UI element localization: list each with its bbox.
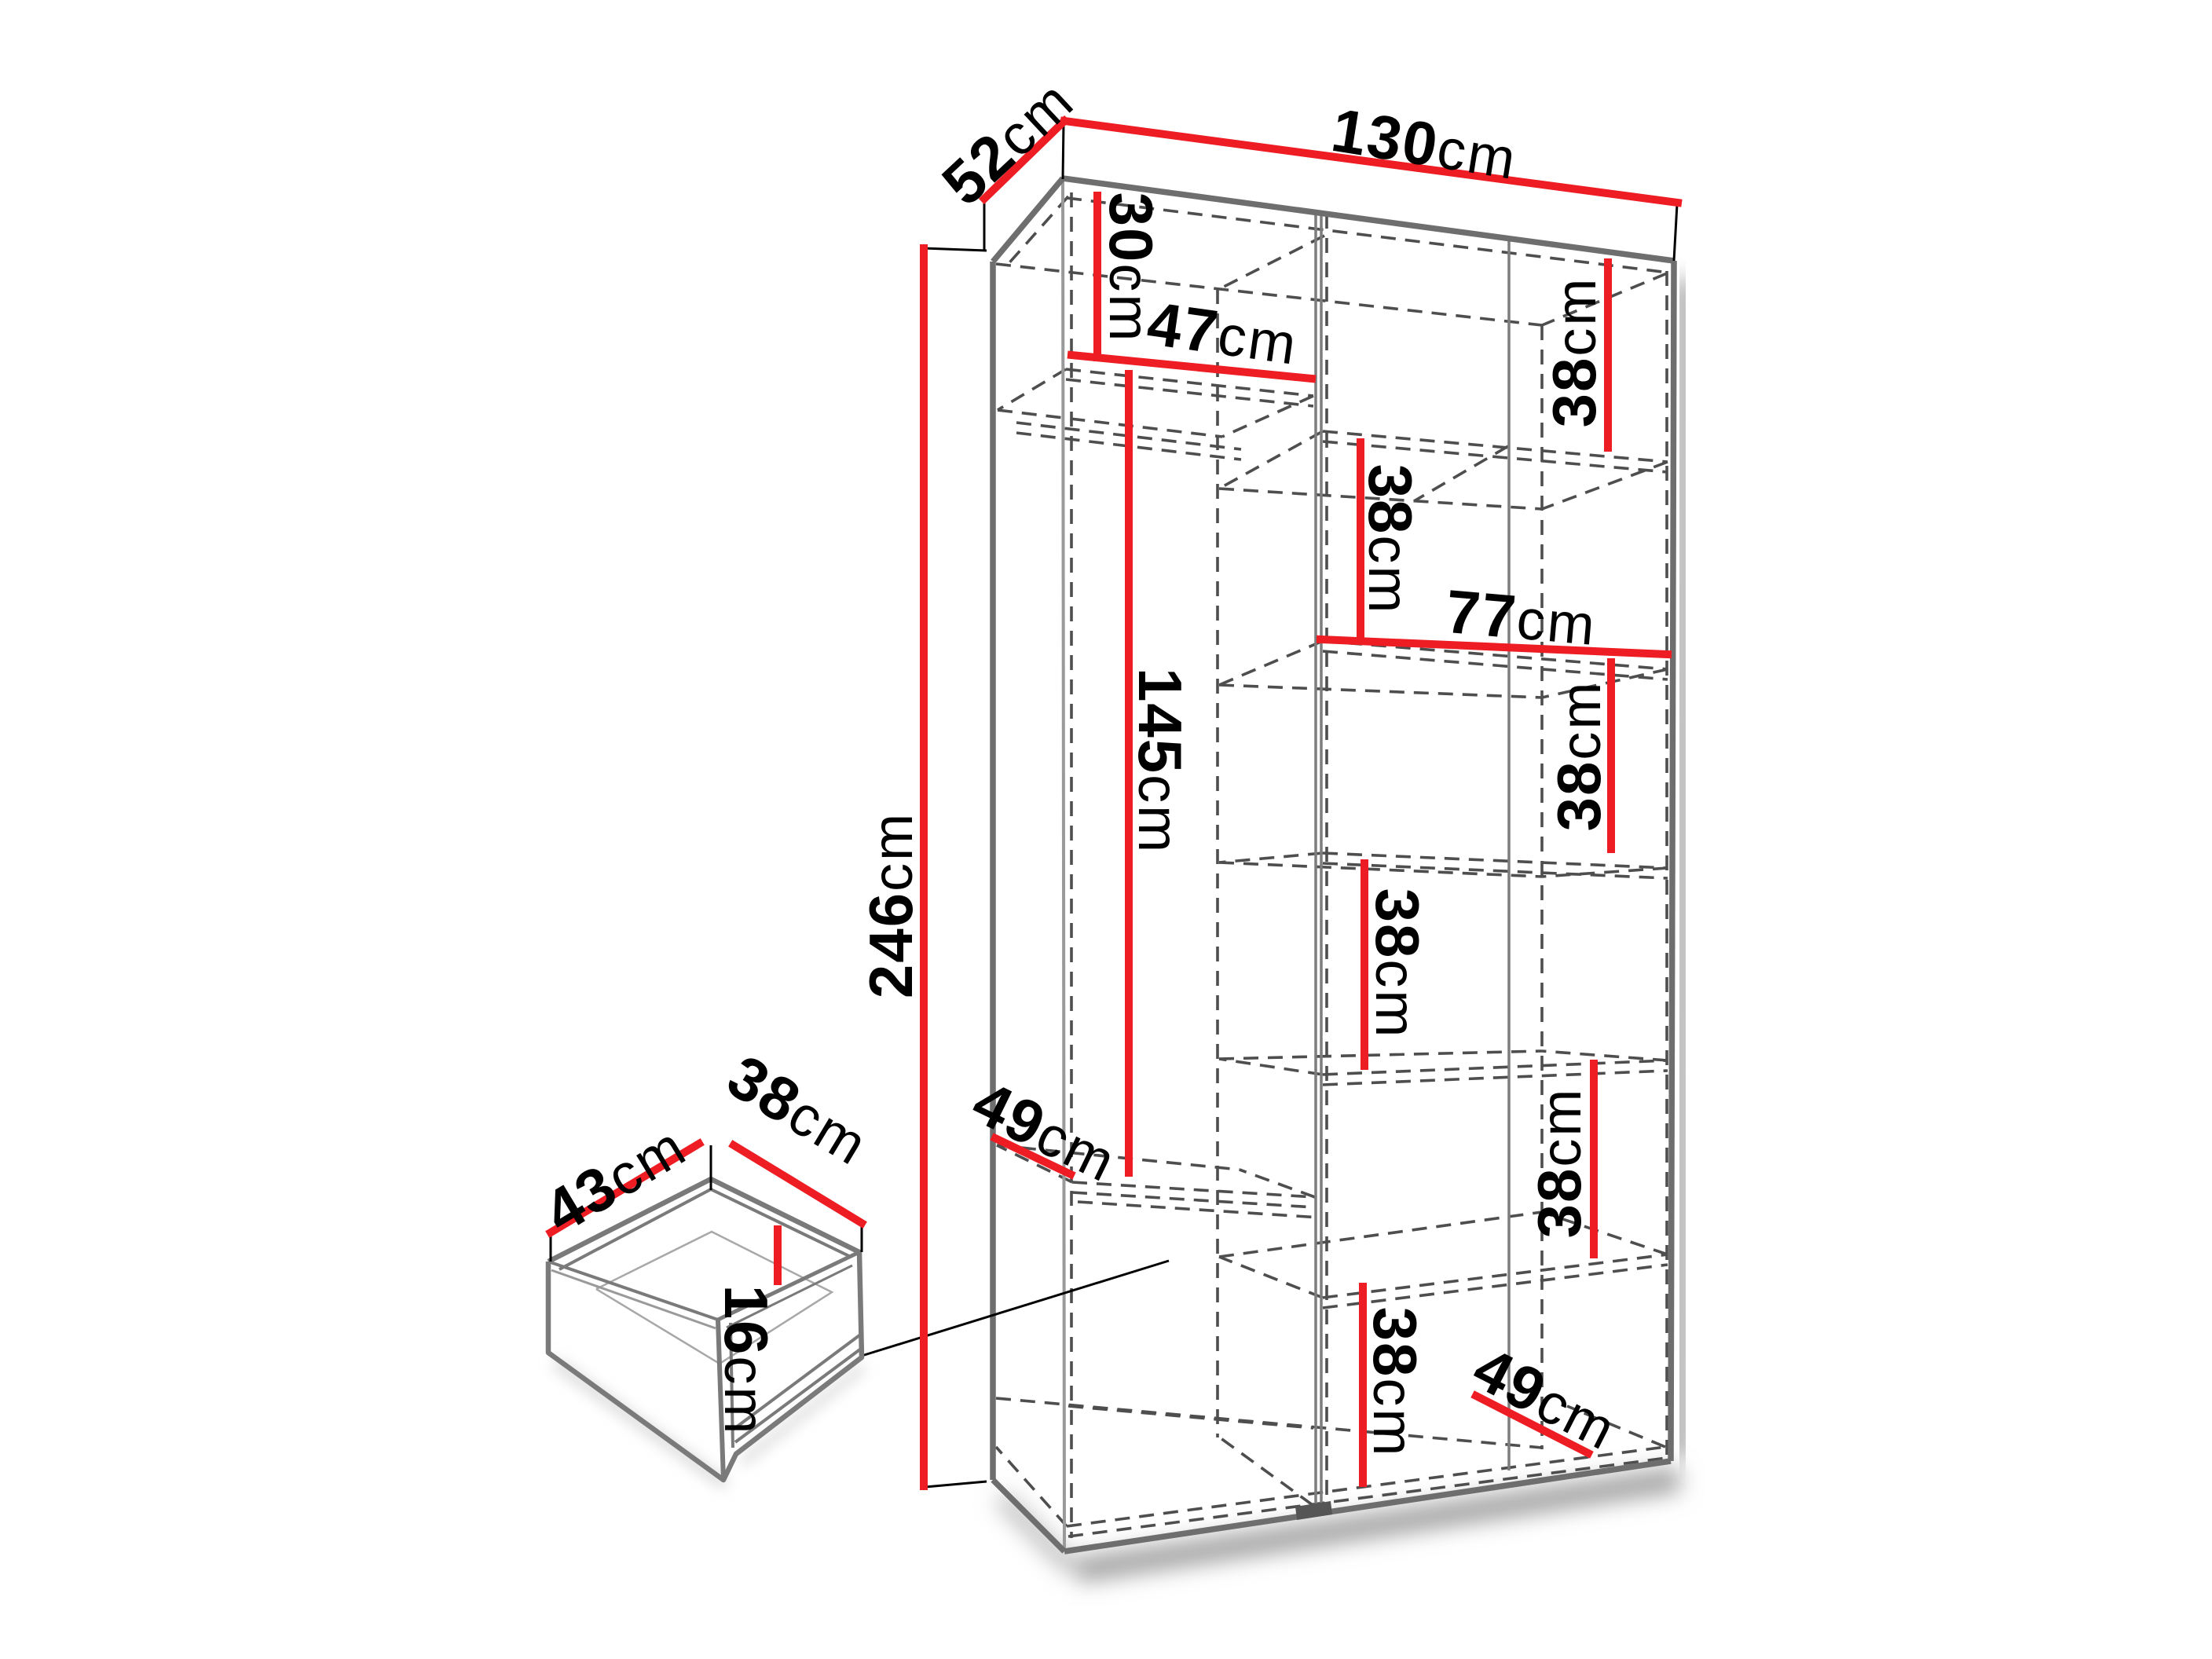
svg-text:16cm: 16cm [712, 1285, 781, 1437]
svg-text:38cm: 38cm [1544, 680, 1613, 832]
svg-text:246cm: 246cm [856, 811, 925, 998]
svg-text:38cm: 38cm [1525, 1087, 1594, 1239]
svg-text:145cm: 145cm [1126, 668, 1195, 855]
svg-text:38cm: 38cm [1356, 464, 1425, 616]
svg-text:38cm: 38cm [1361, 1307, 1430, 1459]
svg-text:38cm: 38cm [1363, 888, 1432, 1040]
svg-text:38cm: 38cm [1540, 276, 1609, 428]
